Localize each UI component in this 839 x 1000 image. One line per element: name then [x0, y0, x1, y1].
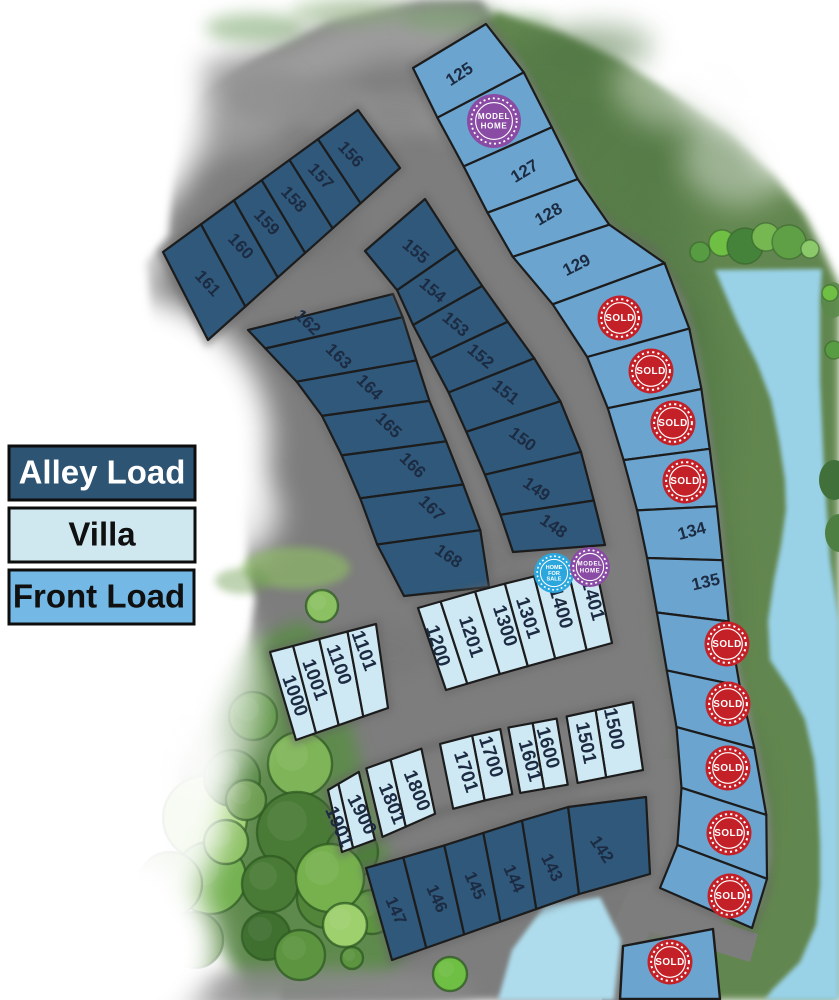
svg-text:SOLD: SOLD — [655, 957, 684, 968]
svg-text:MODEL: MODEL — [478, 112, 510, 121]
svg-text:SOLD: SOLD — [605, 313, 634, 324]
svg-text:SOLD: SOLD — [658, 418, 687, 429]
svg-text:SOLD: SOLD — [713, 699, 742, 710]
svg-text:SOLD: SOLD — [636, 366, 665, 377]
svg-text:Front Load: Front Load — [13, 578, 185, 615]
svg-text:HOME: HOME — [580, 569, 600, 575]
svg-text:HOME: HOME — [546, 565, 563, 571]
svg-text:Villa: Villa — [68, 516, 136, 553]
svg-text:HOME: HOME — [481, 122, 508, 131]
svg-text:SOLD: SOLD — [715, 891, 744, 902]
svg-text:SOLD: SOLD — [712, 639, 741, 650]
svg-text:SALE: SALE — [547, 576, 562, 582]
svg-text:SOLD: SOLD — [670, 476, 699, 487]
svg-text:SOLD: SOLD — [714, 828, 743, 839]
svg-text:SOLD: SOLD — [713, 763, 742, 774]
svg-text:Alley Load: Alley Load — [19, 454, 186, 491]
svg-text:MODEL: MODEL — [578, 561, 603, 567]
